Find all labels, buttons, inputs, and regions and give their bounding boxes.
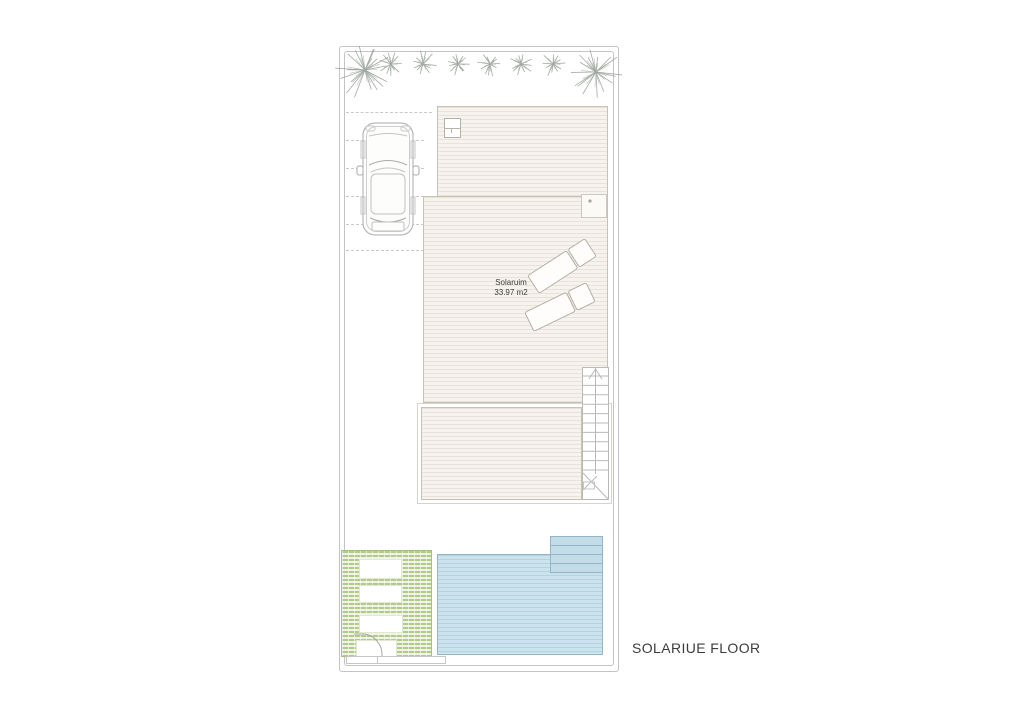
entrance-door-frame: [377, 656, 378, 664]
roof-hatch-line: [445, 128, 460, 129]
parking-line: [346, 196, 424, 197]
parking-line: [346, 224, 424, 225]
parking-line: [346, 250, 424, 251]
solarium-deck-lower: [421, 407, 582, 500]
skylight-box: [581, 194, 607, 218]
solarium-deck-main: [423, 196, 608, 403]
pool-step-line: [551, 554, 602, 555]
parking-line: [346, 112, 432, 113]
staircase: [582, 367, 609, 500]
solarium-name: Solaruim: [478, 278, 544, 288]
roof-hatch-tick: [451, 128, 452, 133]
pool-steps: [550, 536, 603, 573]
planter-window: [359, 585, 402, 603]
planter-window: [356, 640, 397, 657]
entrance-step: [346, 656, 446, 664]
solarium-label: Solaruim 33.97 m2: [478, 278, 544, 298]
roof-hatch-box: [444, 118, 461, 138]
planter-bed: [341, 550, 432, 657]
planter-window: [359, 615, 403, 633]
floor-plan-canvas: Solaruim 33.97 m2 SOLARIUE FLOOR: [0, 0, 1024, 728]
solarium-area: 33.97 m2: [478, 288, 544, 298]
parking-line: [346, 140, 424, 141]
pool-step-line: [551, 545, 602, 546]
solarium-deck-upper: [437, 106, 608, 197]
pool-step-line: [551, 563, 602, 564]
parking-line: [346, 168, 424, 169]
floor-plan-title: SOLARIUE FLOOR: [632, 640, 761, 656]
planter-window: [359, 559, 402, 579]
